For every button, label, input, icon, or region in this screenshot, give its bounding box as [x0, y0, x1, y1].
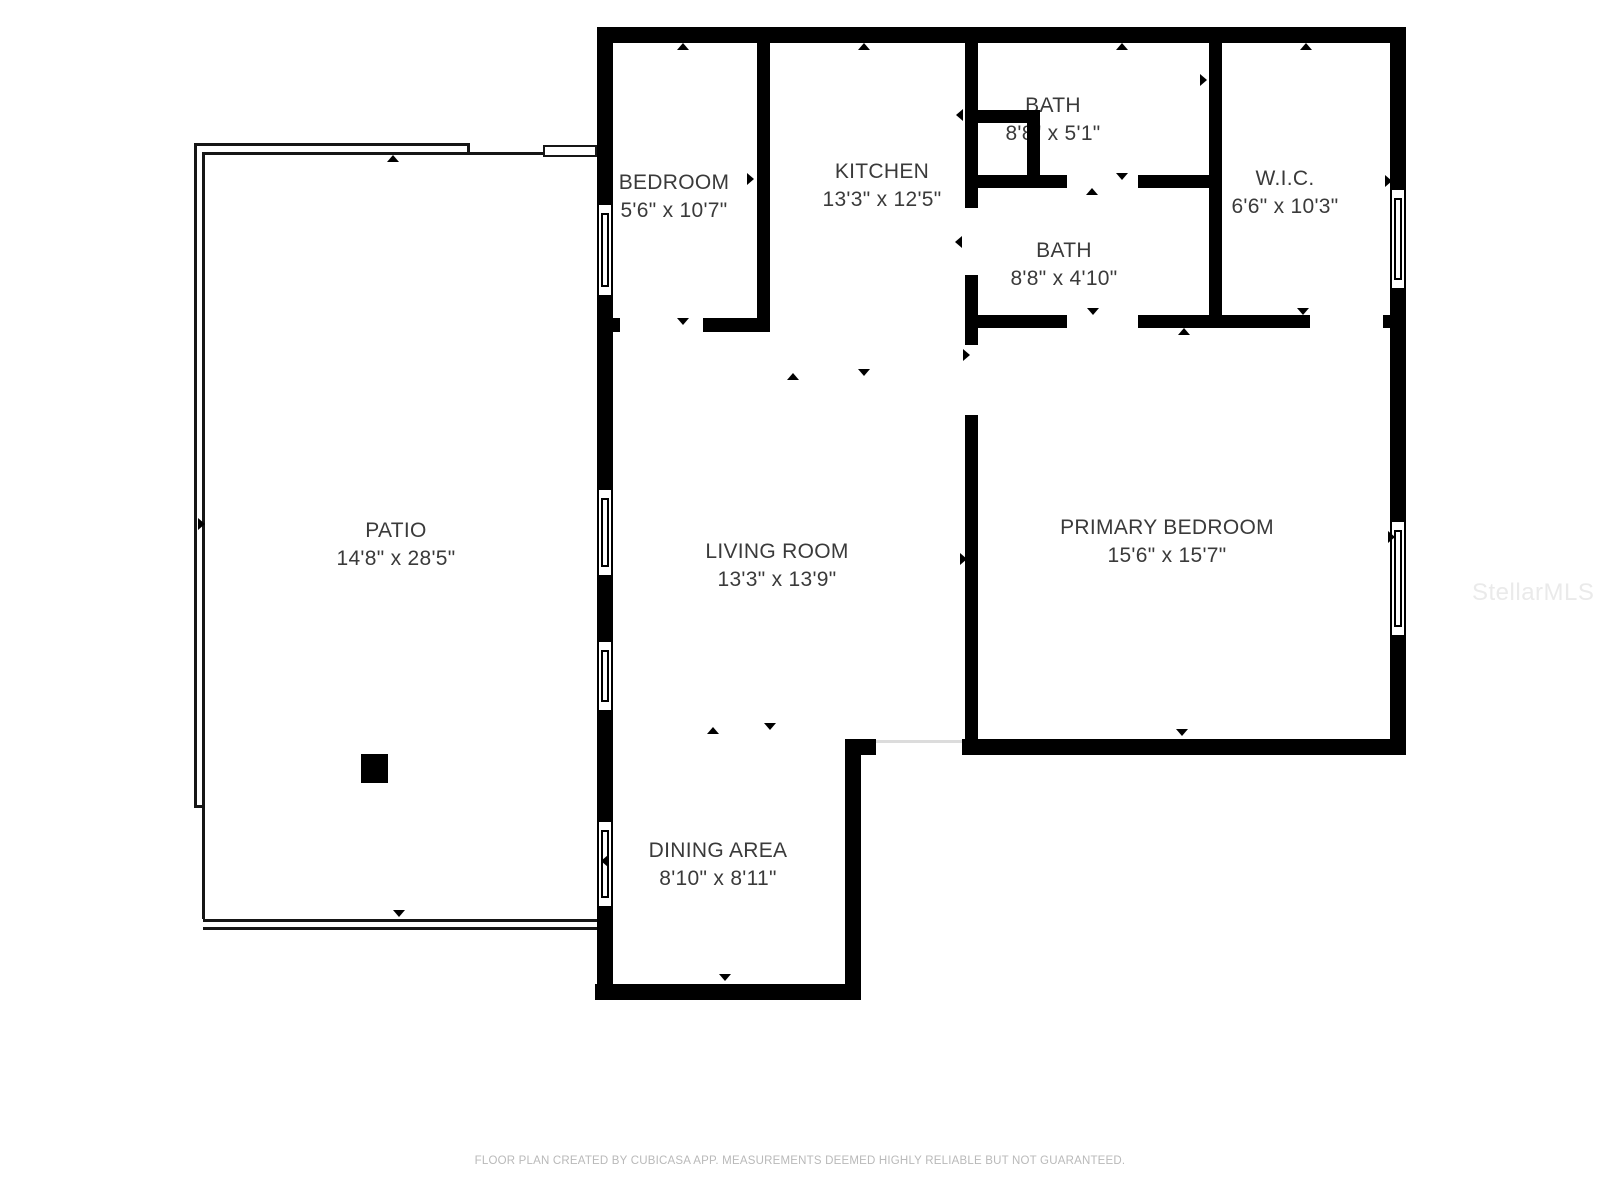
- stellar-mls-watermark: StellarMLS: [1472, 579, 1594, 607]
- door-direction-marker: [960, 553, 967, 565]
- room-dimensions: 13'3" x 13'9": [705, 566, 848, 594]
- patio-railing: [203, 927, 597, 930]
- room-label-patio: PATIO 14'8" x 28'5": [336, 517, 455, 573]
- door-direction-marker: [956, 109, 963, 121]
- room-label-kitchen: KITCHEN 13'3" x 12'5": [822, 158, 941, 214]
- wall-segment: [962, 739, 1406, 755]
- room-dimensions: 13'3" x 12'5": [822, 186, 941, 214]
- patio-railing: [194, 143, 470, 146]
- room-dimensions: 8'8" x 5'1": [1005, 120, 1100, 148]
- wall-segment: [1383, 315, 1406, 328]
- room-label-wic: W.I.C. 6'6" x 10'3": [1231, 165, 1338, 221]
- door-direction-marker: [971, 530, 978, 542]
- door-direction-marker: [858, 43, 870, 50]
- room-dimensions: 14'8" x 28'5": [336, 545, 455, 573]
- room-label-dining-area: DINING AREA 8'10" x 8'11": [649, 837, 788, 893]
- door-direction-marker: [601, 855, 608, 867]
- door-direction-marker: [1087, 308, 1099, 315]
- wall-segment: [703, 318, 770, 332]
- door-direction-marker: [707, 727, 719, 734]
- door-direction-marker: [787, 373, 799, 380]
- room-label-primary-bedroom: PRIMARY BEDROOM 15'6" x 15'7": [1060, 514, 1274, 570]
- wall-segment: [597, 27, 1406, 43]
- wall-segment: [965, 315, 1067, 328]
- door-direction-marker: [764, 723, 776, 730]
- door-direction-marker: [1176, 729, 1188, 736]
- room-label-bath-lower: BATH 8'8" x 4'10": [1010, 237, 1117, 293]
- wall-segment: [965, 175, 1067, 188]
- door-direction-marker: [1200, 74, 1207, 86]
- room-dimensions: 8'8" x 4'10": [1010, 265, 1117, 293]
- door-direction-marker: [1385, 175, 1392, 187]
- patio-railing: [194, 143, 197, 808]
- wall-segment: [757, 43, 770, 332]
- patio-post: [361, 754, 388, 783]
- wall-segment: [597, 712, 613, 820]
- door-direction-marker: [604, 176, 611, 188]
- room-name: DINING AREA: [649, 837, 788, 865]
- room-dimensions: 6'6" x 10'3": [1231, 193, 1338, 221]
- patio-railing-segment: [543, 145, 597, 157]
- window-icon: [597, 203, 613, 297]
- room-dimensions: 8'10" x 8'11": [649, 865, 788, 893]
- door-opening-cap: [965, 205, 978, 208]
- window-icon: [597, 488, 613, 577]
- room-name: BATH: [1010, 237, 1117, 265]
- patio-railing: [202, 152, 205, 919]
- door-direction-marker: [719, 974, 731, 981]
- wall-segment: [1209, 43, 1222, 328]
- room-label-living-room: LIVING ROOM 13'3" x 13'9": [705, 538, 848, 594]
- room-name: LIVING ROOM: [705, 538, 848, 566]
- door-direction-marker: [858, 369, 870, 376]
- door-direction-marker: [1178, 328, 1190, 335]
- door-direction-marker: [387, 155, 399, 162]
- room-name: PRIMARY BEDROOM: [1060, 514, 1274, 542]
- door-direction-marker: [1086, 188, 1098, 195]
- door-direction-marker: [677, 43, 689, 50]
- patio-railing: [203, 919, 597, 922]
- room-name: BEDROOM: [619, 169, 730, 197]
- wall-segment: [845, 755, 861, 1000]
- footer-disclaimer: FLOOR PLAN CREATED BY CUBICASA APP. MEAS…: [0, 1155, 1600, 1167]
- room-dimensions: 5'6" x 10'7": [619, 197, 730, 225]
- room-dimensions: 15'6" x 15'7": [1060, 542, 1274, 570]
- door-direction-marker: [677, 318, 689, 325]
- wall-segment: [1390, 637, 1406, 753]
- window-icon: [597, 640, 613, 712]
- room-label-bedroom: BEDROOM 5'6" x 10'7": [619, 169, 730, 225]
- floorplan: BEDROOM 5'6" x 10'7" KITCHEN 13'3" x 12'…: [0, 0, 1600, 1200]
- wall-segment: [1138, 315, 1310, 328]
- wall-segment: [965, 415, 978, 739]
- room-name: PATIO: [336, 517, 455, 545]
- wall-segment: [1027, 110, 1040, 175]
- wall-segment: [597, 318, 620, 332]
- door-direction-marker: [1300, 43, 1312, 50]
- door-direction-marker: [198, 518, 205, 530]
- door-direction-marker: [1297, 308, 1309, 315]
- wall-segment: [595, 984, 861, 1000]
- patio-railing: [203, 152, 543, 155]
- wall-segment: [1390, 27, 1406, 188]
- door-direction-marker: [1388, 531, 1395, 543]
- patio-railing: [467, 143, 470, 155]
- door-direction-marker: [955, 236, 962, 248]
- opening-threshold-line: [876, 740, 962, 743]
- wall-segment: [597, 577, 613, 640]
- wall-segment: [965, 278, 978, 345]
- door-opening-cap: [965, 275, 978, 278]
- room-name: KITCHEN: [822, 158, 941, 186]
- room-name: W.I.C.: [1231, 165, 1338, 193]
- door-direction-marker: [747, 173, 754, 185]
- door-direction-marker: [393, 910, 405, 917]
- door-direction-marker: [1116, 173, 1128, 180]
- door-direction-marker: [963, 349, 970, 361]
- wall-segment: [845, 739, 876, 755]
- window-icon: [1390, 188, 1406, 290]
- door-direction-marker: [1116, 43, 1128, 50]
